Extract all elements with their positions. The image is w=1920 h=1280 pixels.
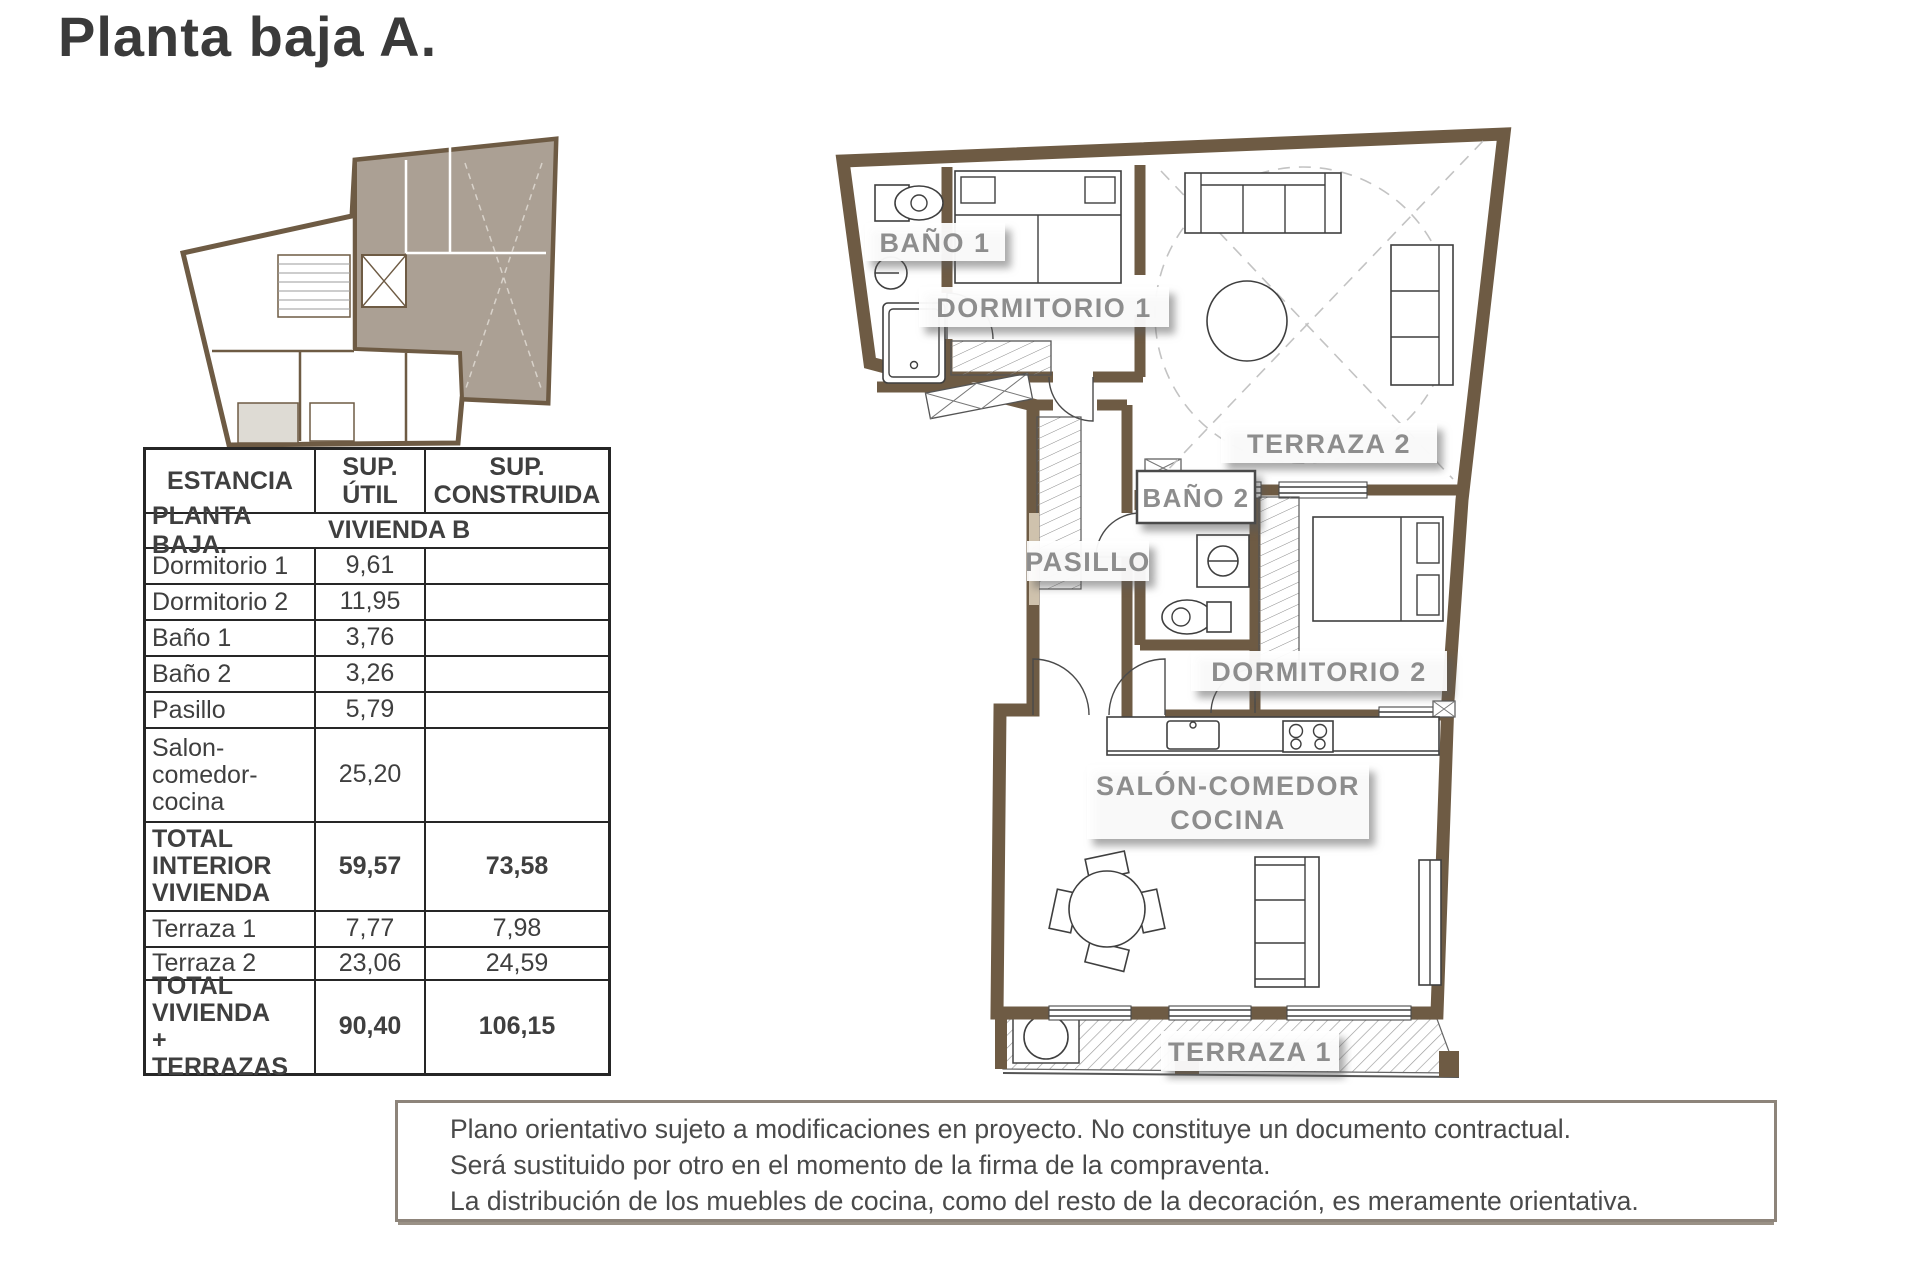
svg-text:TERRAZA 2: TERRAZA 2 [1247,429,1411,459]
table-row: Terraza 1 7,77 7,98 [146,910,608,946]
svg-text:SALÓN-COMEDOR: SALÓN-COMEDOR [1096,770,1360,801]
header-sup-util: SUP. ÚTIL [314,450,424,512]
svg-text:PASILLO: PASILLO [1025,547,1151,577]
svg-text:BAÑO 1: BAÑO 1 [879,227,990,258]
floor-plan: BAÑO 1 DORMITORIO 1 TERRAZA 2 PASILLO BA… [835,125,1515,1085]
svg-text:DORMITORIO 1: DORMITORIO 1 [936,293,1152,323]
keyplan-building [183,139,556,445]
dormitorio1-furniture [951,171,1121,375]
label-bano1: BAÑO 1 [865,223,1005,261]
label-pasillo: PASILLO [1025,541,1151,581]
terraza1-round-table [1024,1015,1068,1059]
label-terraza2: TERRAZA 2 [1221,423,1437,463]
label-bano2: BAÑO 2 [1137,471,1255,523]
table-row: Salon-comedor-cocina 25,20 [146,727,608,821]
label-salon: SALÓN-COMEDOR COCINA [1087,765,1369,839]
page-title: Planta baja A. [58,4,437,69]
terraza2-round-table [1207,281,1287,361]
header-sup-construida: SUP. CONSTRUIDA [424,450,608,512]
svg-text:BAÑO 2: BAÑO 2 [1142,483,1249,513]
bano1-fixtures [875,185,945,383]
table-row-total-interior: TOTAL INTERIOR VIVIENDA 59,57 73,58 [146,821,608,910]
disclaimer-box: Plano orientativo sujeto a modificacione… [395,1100,1777,1222]
keyplan-overview [150,103,570,448]
section-subtitle: VIVIENDA B [328,516,470,545]
table-row: Dormitorio 2 11,95 [146,583,608,619]
label-dormitorio2: DORMITORIO 2 [1191,651,1447,691]
salon-furniture [1049,717,1441,987]
table-row: Dormitorio 1 9,61 [146,547,608,583]
disclaimer-line: Plano orientativo sujeto a modificacione… [450,1111,1756,1147]
brochure-page: Planta baja A. ESTANCIA SUP. ÚTIL SUP. C… [0,0,1920,1280]
svg-text:COCINA: COCINA [1170,805,1286,835]
table-row: Baño 2 3,26 [146,655,608,691]
label-terraza1: TERRAZA 1 [1161,1031,1339,1071]
table-section-row: PLANTA BAJA. VIVIENDA B [146,512,608,547]
disclaimer-line: La distribución de los muebles de cocina… [450,1183,1756,1219]
dining-set [1049,851,1165,971]
table-row-total-vivienda: TOTAL VIVIENDA + TERRAZAS 90,40 106,15 [146,979,608,1073]
table-row: Pasillo 5,79 [146,691,608,727]
table-row: Baño 1 3,76 [146,619,608,655]
keyplan-terrace-gray [238,403,298,443]
area-table: ESTANCIA SUP. ÚTIL SUP. CONSTRUIDA PLANT… [143,447,611,1076]
label-dormitorio1: DORMITORIO 1 [919,287,1169,327]
dormitorio2-furniture [1259,497,1443,673]
svg-text:DORMITORIO 2: DORMITORIO 2 [1211,657,1427,687]
bano2-fixtures [1162,535,1249,634]
dormitorio2-wardrobe [1259,497,1299,673]
dormitorio1-wardrobe [951,341,1051,375]
svg-text:TERRAZA 1: TERRAZA 1 [1168,1037,1332,1067]
disclaimer-line: Será sustituido por otro en el momento d… [450,1147,1756,1183]
